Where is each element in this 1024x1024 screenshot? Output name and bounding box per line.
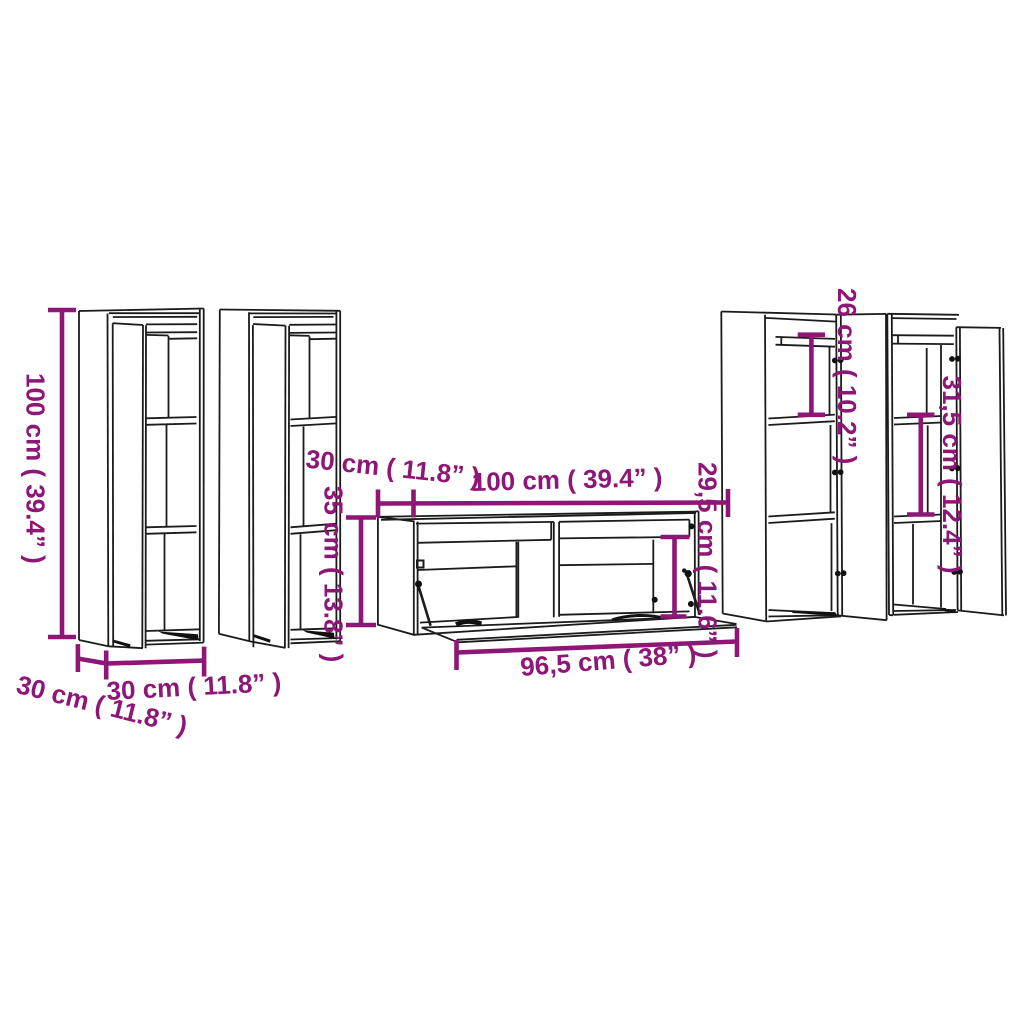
svg-text:30 cm ( 11.8” ): 30 cm ( 11.8” ) — [106, 667, 282, 706]
svg-text:26 cm ( 10.2” ): 26 cm ( 10.2” ) — [832, 288, 862, 464]
svg-text:35 cm ( 13.8” ): 35 cm ( 13.8” ) — [318, 486, 348, 662]
svg-text:31,5 cm ( 12.4” ): 31,5 cm ( 12.4” ) — [937, 376, 967, 574]
svg-text:29,5 cm ( 11.6” ): 29,5 cm ( 11.6” ) — [693, 462, 723, 659]
svg-text:100 cm ( 39.4” ): 100 cm ( 39.4” ) — [21, 373, 51, 564]
svg-text:100 cm ( 39.4” ): 100 cm ( 39.4” ) — [471, 462, 663, 497]
svg-text:30 cm ( 11.8” ): 30 cm ( 11.8” ) — [304, 444, 481, 492]
svg-text:96,5 cm ( 38” ): 96,5 cm ( 38” ) — [519, 638, 697, 682]
